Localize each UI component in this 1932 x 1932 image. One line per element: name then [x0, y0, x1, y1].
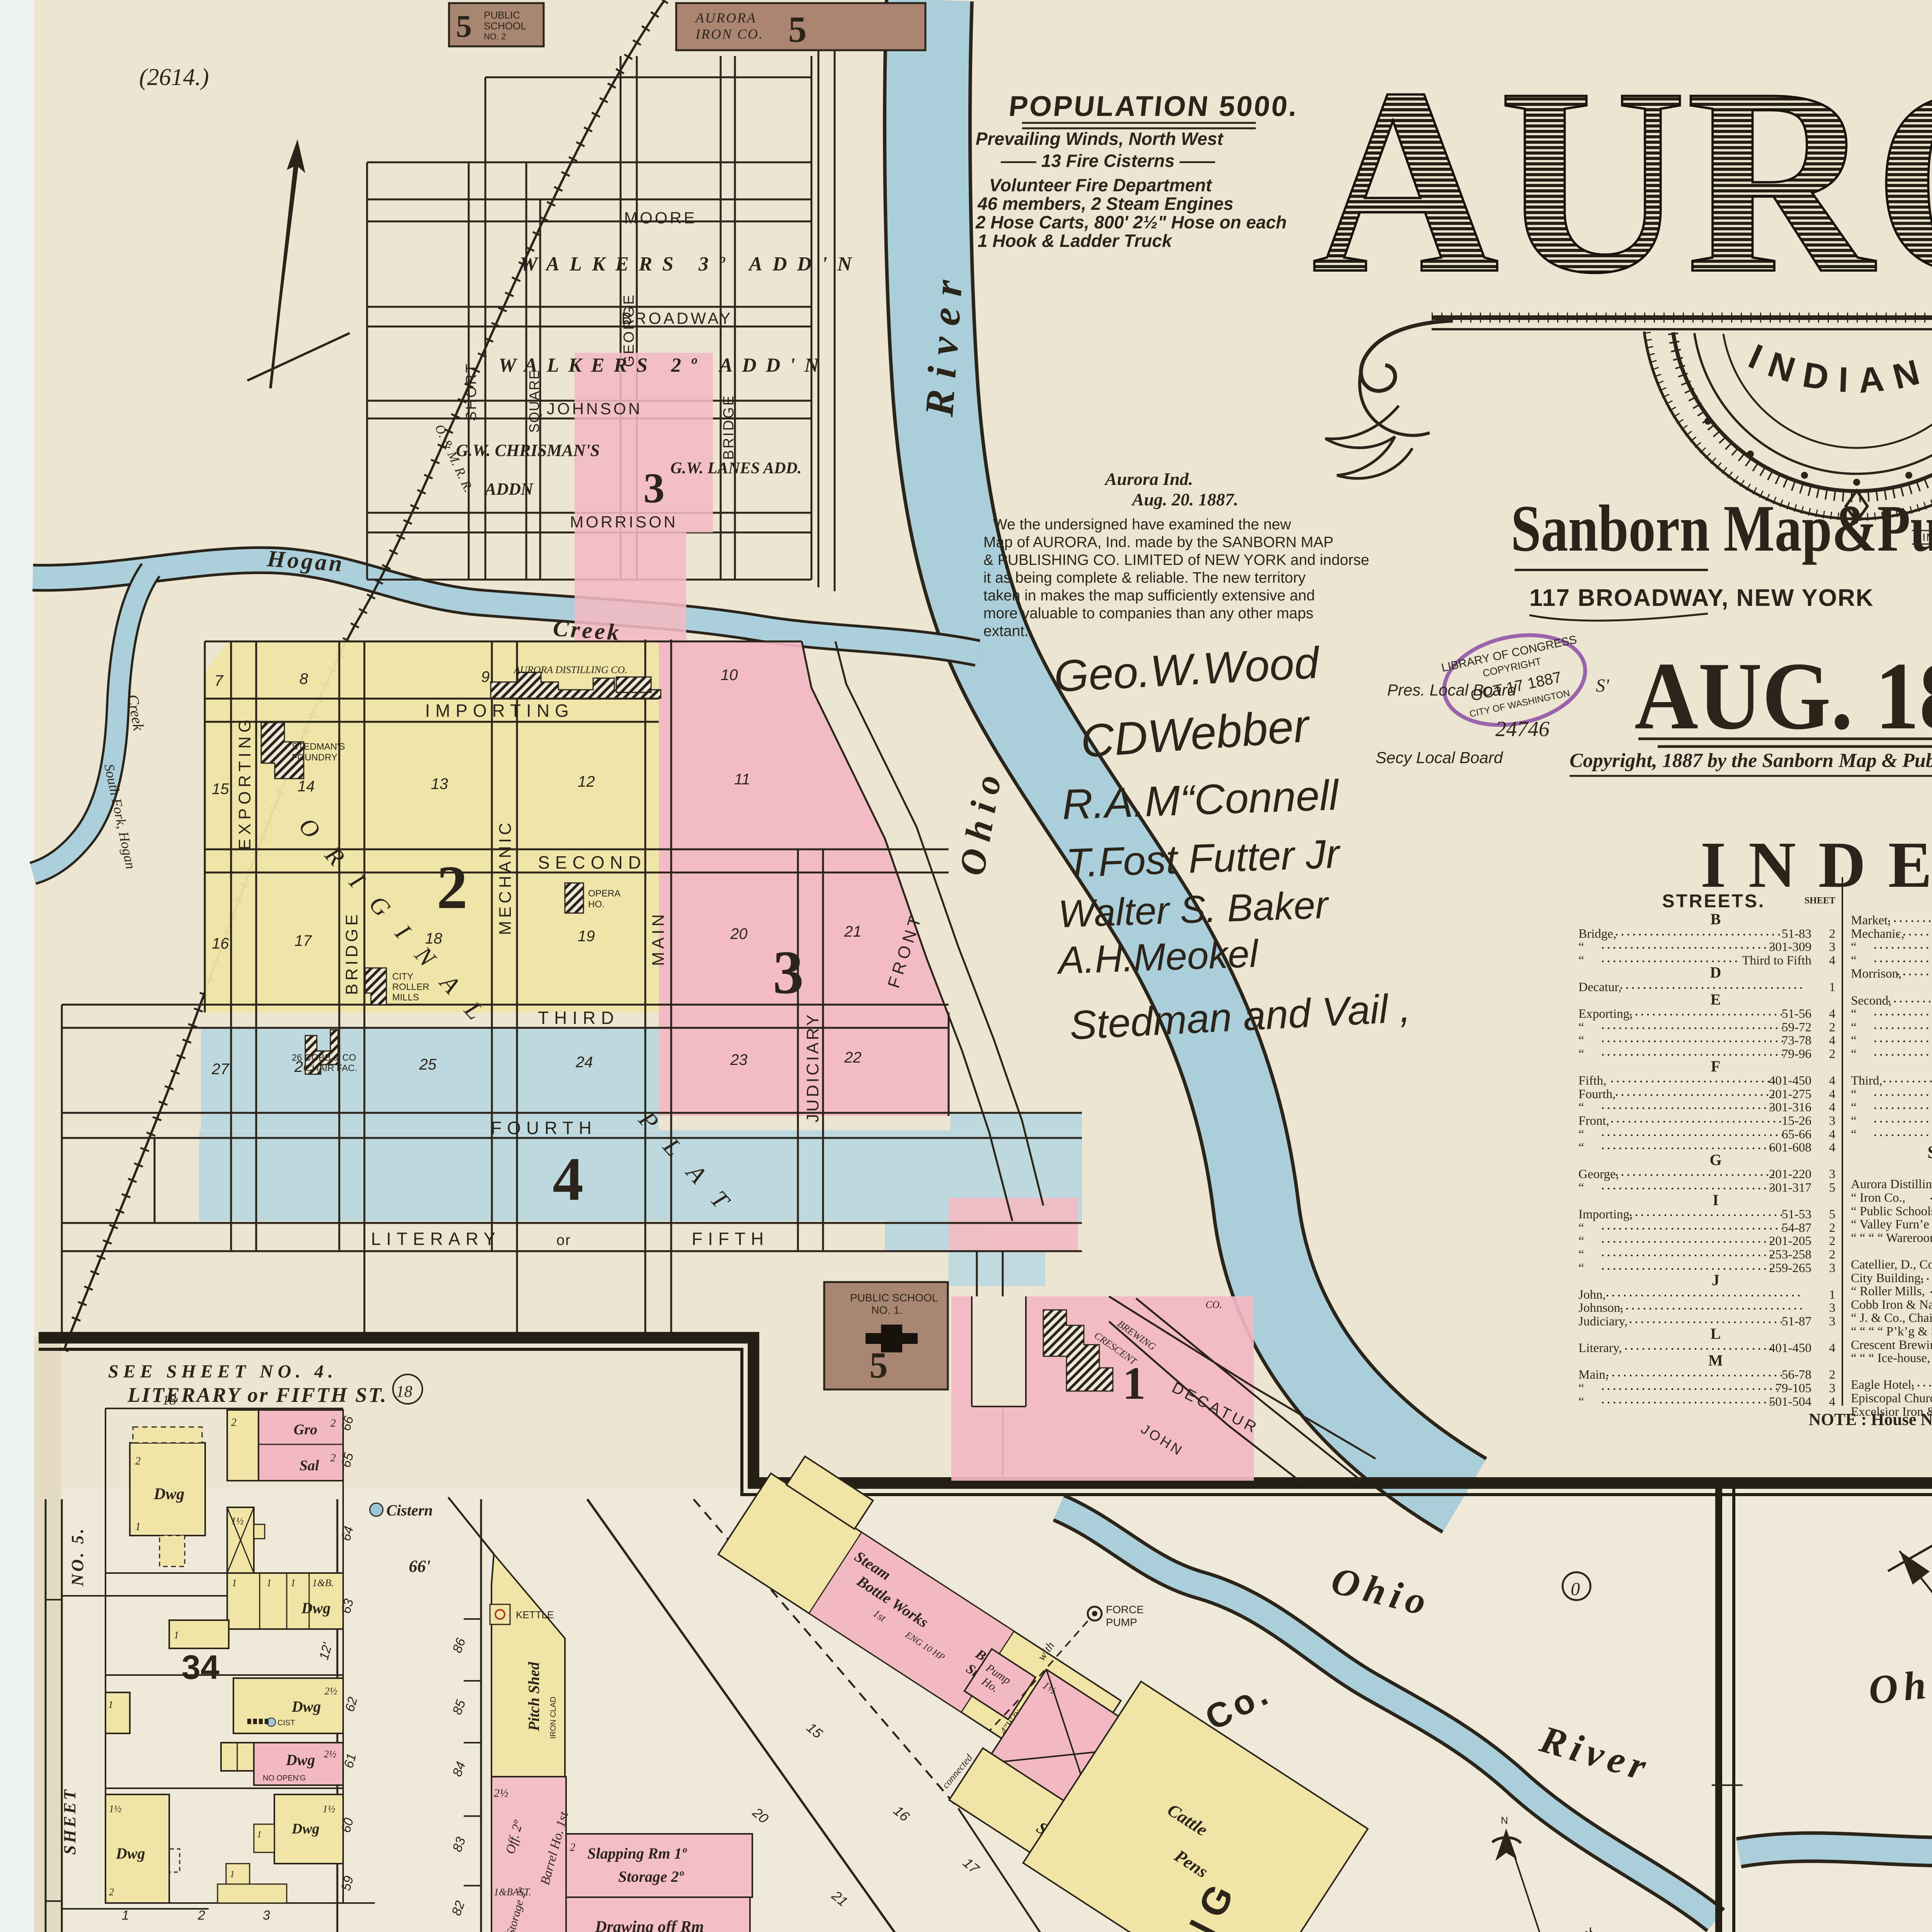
svg-text:73-78: 73-78	[1782, 1034, 1811, 1048]
svg-text:Cistern: Cistern	[386, 1502, 433, 1519]
svg-text:2: 2	[1829, 1047, 1836, 1061]
svg-text:Catellier, D., Co.’s Shoe Manu: Catellier, D., Co.’s Shoe Manufactury,	[1851, 1258, 1932, 1272]
svg-text:ADDN: ADDN	[484, 480, 534, 498]
svg-text:501-504: 501-504	[1769, 1395, 1811, 1409]
svg-text:T.Fost Futter Jr: T.Fost Futter Jr	[1065, 831, 1342, 886]
svg-text:Cobb Iron & Nail Co.,: Cobb Iron & Nail Co.,	[1851, 1298, 1932, 1312]
svg-text:B: B	[1711, 910, 1721, 928]
svg-text:21: 21	[844, 923, 862, 940]
svg-text:MECHANIC: MECHANIC	[496, 820, 515, 935]
svg-text:CITY: CITY	[392, 971, 413, 982]
svg-text:“: “	[1578, 1395, 1584, 1409]
svg-text:A.H.Meokel: A.H.Meokel	[1056, 932, 1260, 982]
svg-text:18: 18	[425, 930, 442, 947]
svg-text:2: 2	[1829, 1248, 1836, 1262]
svg-text:26 COBB & CO: 26 COBB & CO	[292, 1053, 356, 1063]
svg-text:SCHOOL: SCHOOL	[484, 20, 526, 32]
svg-text:PUMP: PUMP	[1106, 1616, 1137, 1628]
svg-text:“: “	[1578, 1100, 1584, 1114]
svg-text:66': 66'	[409, 1557, 430, 1576]
svg-text:16: 16	[212, 935, 229, 952]
svg-text:Dwg: Dwg	[153, 1485, 184, 1503]
svg-text:1: 1	[1122, 1357, 1146, 1409]
svg-text:“ “ “ “ Warerooms,: “ “ “ “ Warerooms,	[1851, 1231, 1932, 1245]
svg-text:79-105: 79-105	[1776, 1381, 1812, 1395]
svg-text:10: 10	[721, 667, 738, 684]
svg-text:“: “	[1578, 1181, 1584, 1195]
svg-text:259-265: 259-265	[1769, 1261, 1811, 1275]
svg-text:1: 1	[267, 1577, 272, 1588]
svg-text:“: “	[1578, 1234, 1584, 1248]
svg-text:AURORA: AURORA	[695, 10, 757, 26]
svg-text:19: 19	[578, 928, 595, 945]
svg-text:2: 2	[437, 853, 468, 922]
svg-text:2: 2	[570, 1842, 575, 1854]
svg-text:18: 18	[162, 1392, 176, 1408]
svg-text:3: 3	[263, 1908, 270, 1923]
svg-text:4: 4	[1829, 954, 1836, 968]
svg-text:“: “	[1851, 954, 1857, 968]
svg-text:13: 13	[431, 776, 448, 793]
svg-text:“ Valley Furn’e Co.,: “ Valley Furn’e Co.,	[1851, 1218, 1932, 1231]
svg-text:Exporting,: Exporting,	[1578, 1007, 1633, 1021]
svg-text:Judiciary,: Judiciary,	[1578, 1315, 1628, 1328]
svg-text:1½: 1½	[323, 1803, 335, 1815]
svg-text:CHAIR FAC.: CHAIR FAC.	[305, 1063, 357, 1073]
svg-text:G.W. CHRISMAN'S: G.W. CHRISMAN'S	[456, 441, 600, 460]
svg-text:Third to Fifth: Third to Fifth	[1742, 954, 1811, 968]
svg-text:25: 25	[419, 1056, 437, 1073]
svg-text:SECOND: SECOND	[538, 852, 646, 872]
svg-text:Gro: Gro	[294, 1422, 317, 1438]
svg-text:Crescent Brewing Co.,: Crescent Brewing Co.,	[1851, 1338, 1932, 1352]
svg-text:FORCE: FORCE	[1106, 1604, 1144, 1616]
svg-text:Storage 2º: Storage 2º	[618, 1868, 684, 1885]
svg-text:STEDMAN'S: STEDMAN'S	[292, 742, 345, 752]
svg-text:“: “	[1851, 1114, 1857, 1128]
svg-text:Market,: Market,	[1851, 913, 1891, 927]
svg-text:FOURTH: FOURTH	[491, 1118, 597, 1138]
svg-text:BROADWAY: BROADWAY	[621, 309, 733, 327]
svg-text:F: F	[1711, 1058, 1720, 1075]
svg-text:“ Roller Mills,: “ Roller Mills,	[1851, 1284, 1925, 1298]
svg-text:2: 2	[1829, 1221, 1836, 1235]
svg-text:“: “	[1578, 940, 1584, 954]
svg-text:“: “	[1851, 1034, 1857, 1048]
svg-text:taken in makes the map suffici: taken in makes the map sufficiently exte…	[983, 587, 1315, 604]
svg-text:SEE SHEET NO. 4.: SEE SHEET NO. 4.	[108, 1361, 337, 1382]
svg-text:GEORGE: GEORGE	[621, 293, 637, 367]
svg-text:“ Iron Co.,: “ Iron Co.,	[1851, 1191, 1905, 1205]
svg-text:IRON CO.: IRON CO.	[695, 26, 764, 42]
svg-text:AUG. 1887: AUG. 1887	[1634, 643, 1932, 750]
svg-text:2: 2	[330, 1452, 336, 1464]
svg-text:WALKERS 2º ADD'N: WALKERS 2º ADD'N	[498, 354, 828, 376]
svg-text:MAIN: MAIN	[649, 911, 668, 966]
svg-text:15: 15	[212, 781, 229, 798]
svg-text:2: 2	[1829, 1368, 1836, 1382]
svg-text:4: 4	[1829, 1074, 1836, 1088]
svg-text:3: 3	[643, 464, 665, 512]
svg-text:Johnson,: Johnson,	[1578, 1301, 1623, 1315]
svg-text:INDEX.: INDEX.	[1701, 828, 1932, 901]
svg-text:54-87: 54-87	[1782, 1221, 1811, 1235]
svg-text:HO.: HO.	[588, 899, 605, 910]
svg-text:KETTLE: KETTLE	[516, 1609, 554, 1621]
svg-text:1: 1	[1829, 980, 1836, 994]
svg-text:23: 23	[730, 1051, 748, 1068]
svg-text:“: “	[1851, 940, 1857, 954]
svg-text:27: 27	[211, 1061, 230, 1078]
svg-text:STREETS.: STREETS.	[1662, 891, 1765, 912]
svg-text:“ “ “ Ice-house,: “ “ “ Ice-house,	[1851, 1351, 1930, 1365]
svg-text:301-309: 301-309	[1769, 940, 1811, 954]
svg-text:CIST: CIST	[277, 1719, 295, 1727]
svg-text:59-72: 59-72	[1782, 1020, 1811, 1034]
svg-text:5: 5	[869, 1345, 888, 1386]
svg-text:John,: John,	[1578, 1288, 1606, 1302]
svg-text:Literary,: Literary,	[1578, 1341, 1622, 1355]
svg-text:“ J. & Co., Chair Fact.,: “ J. & Co., Chair Fact.,	[1851, 1311, 1932, 1325]
svg-text:NO. 1.: NO. 1.	[871, 1304, 903, 1316]
svg-text:1 Hook & Ladder Truck: 1 Hook & Ladder Truck	[978, 231, 1173, 251]
svg-text:or: or	[556, 1232, 571, 1248]
svg-text:1: 1	[108, 1699, 113, 1710]
svg-text:2: 2	[197, 1908, 205, 1923]
svg-text:4: 4	[1829, 1034, 1836, 1048]
svg-text:51-83: 51-83	[1782, 927, 1811, 941]
svg-text:more valuable to companies tha: more valuable to companies than any othe…	[983, 605, 1313, 622]
svg-text:Episcopal Church,: Episcopal Church,	[1851, 1391, 1932, 1405]
svg-text:65-66: 65-66	[1782, 1128, 1811, 1141]
svg-text:Dwg: Dwg	[291, 1821, 320, 1837]
svg-text:“: “	[1851, 1020, 1857, 1034]
svg-text:1: 1	[135, 1521, 141, 1533]
svg-text:MILLS: MILLS	[392, 992, 419, 1003]
svg-text:JOHNSON: JOHNSON	[547, 400, 642, 418]
svg-text:NO. 5.: NO. 5.	[68, 1526, 87, 1587]
svg-text:“: “	[1851, 1100, 1857, 1114]
svg-text:Hogan: Hogan	[266, 546, 345, 577]
svg-text:Pitch Shed: Pitch Shed	[525, 1662, 543, 1731]
svg-text:JUDICIARY: JUDICIARY	[803, 1012, 822, 1122]
svg-text:Dwg: Dwg	[301, 1599, 331, 1617]
svg-text:Sal: Sal	[299, 1458, 319, 1474]
svg-text:1½: 1½	[231, 1515, 244, 1527]
svg-text:NO OPEN'G: NO OPEN'G	[263, 1774, 306, 1782]
svg-text:1: 1	[257, 1830, 262, 1840]
svg-text:1: 1	[291, 1577, 296, 1588]
svg-text:LIMITED: LIMITED	[1916, 531, 1932, 543]
svg-text:18: 18	[396, 1383, 412, 1401]
svg-text:“: “	[1578, 1141, 1584, 1155]
svg-text:4: 4	[1829, 1100, 1836, 1114]
svg-text:POPULATION 5000.: POPULATION 5000.	[1007, 90, 1300, 122]
svg-text:“: “	[1578, 954, 1584, 968]
svg-text:extant.: extant.	[983, 623, 1029, 639]
svg-text:“: “	[1851, 1007, 1857, 1021]
svg-text:Front,: Front,	[1578, 1114, 1609, 1128]
svg-text:—— 13 Fire Cisterns ——: —— 13 Fire Cisterns ——	[1000, 151, 1216, 171]
svg-text:M: M	[1708, 1352, 1723, 1369]
svg-text:Fourth,: Fourth,	[1578, 1087, 1616, 1101]
svg-text:5: 5	[1829, 1181, 1836, 1195]
svg-text:it as being complete & reliabl: it as being complete & reliable. The new…	[983, 570, 1306, 586]
svg-text:22: 22	[844, 1049, 862, 1066]
svg-text:4: 4	[1829, 1128, 1836, 1141]
svg-text:253-258: 253-258	[1769, 1248, 1811, 1262]
svg-text:1: 1	[174, 1629, 179, 1641]
svg-text:MORRISON: MORRISON	[570, 513, 678, 531]
svg-text:2: 2	[1829, 1234, 1836, 1248]
svg-text:Second,: Second,	[1851, 994, 1891, 1008]
svg-text:“: “	[1578, 1047, 1584, 1061]
svg-text:N: N	[1501, 1815, 1508, 1826]
svg-text:Drawing off Rm: Drawing off Rm	[595, 1918, 704, 1932]
svg-text:12: 12	[578, 773, 595, 790]
svg-text:1: 1	[1829, 1288, 1836, 1302]
svg-text:4: 4	[1829, 1007, 1836, 1021]
svg-text:OPERA: OPERA	[588, 888, 621, 899]
svg-text:MOORE: MOORE	[624, 209, 697, 227]
svg-text:We the undersigned have examin: We the undersigned have examined the new	[993, 516, 1291, 533]
svg-text:15-26: 15-26	[1782, 1114, 1811, 1128]
svg-text:1: 1	[230, 1869, 235, 1879]
svg-text:EXPORTING: EXPORTING	[235, 716, 254, 850]
svg-text:79-96: 79-96	[1782, 1047, 1811, 1061]
svg-text:14: 14	[298, 778, 315, 795]
svg-text:Secy Local Board: Secy Local Board	[1376, 748, 1503, 767]
svg-text:3: 3	[773, 938, 804, 1007]
svg-text:G.W. LANES ADD.: G.W. LANES ADD.	[670, 459, 802, 477]
svg-text:Fifth,: Fifth,	[1578, 1074, 1606, 1088]
svg-text:Dwg: Dwg	[291, 1698, 321, 1715]
svg-text:BRIDGE: BRIDGE	[721, 394, 737, 460]
svg-text:17: 17	[294, 932, 312, 949]
svg-text:Aurora Distilling Co.,: Aurora Distilling Co.,	[1851, 1177, 1932, 1191]
svg-text:“: “	[1578, 1381, 1584, 1395]
svg-text:Prevailing Winds, North West: Prevailing Winds, North West	[976, 129, 1224, 149]
svg-text:“ Public Schools,: “ Public Schools,	[1851, 1204, 1932, 1218]
svg-text:Third,: Third,	[1851, 1074, 1883, 1088]
svg-text:“: “	[1578, 1128, 1584, 1141]
svg-text:4: 4	[1829, 1141, 1836, 1155]
svg-text:601-608: 601-608	[1769, 1141, 1811, 1155]
svg-text:S': S'	[1596, 675, 1609, 696]
svg-text:SPECIALS.: SPECIALS.	[1927, 1142, 1932, 1162]
svg-text:0: 0	[1571, 1579, 1580, 1599]
svg-text:2½: 2½	[494, 1787, 509, 1799]
svg-text:Volunteer Fire Department: Volunteer Fire Department	[989, 175, 1213, 195]
svg-text:SQUARE: SQUARE	[526, 369, 542, 433]
svg-text:2: 2	[1829, 927, 1836, 941]
svg-text:2½: 2½	[325, 1685, 337, 1697]
svg-text:& PUBLISHING CO. LIMITED of NE: & PUBLISHING CO. LIMITED of NEW YORK and…	[983, 552, 1369, 568]
svg-text:SHORT: SHORT	[463, 362, 480, 421]
svg-text:SHEET: SHEET	[1804, 896, 1835, 906]
svg-text:Aurora Ind.: Aurora Ind.	[1104, 469, 1193, 489]
svg-text:Dwg: Dwg	[286, 1751, 315, 1769]
svg-text:3: 3	[1829, 1261, 1836, 1275]
svg-text:L: L	[1711, 1325, 1721, 1342]
svg-text:2: 2	[109, 1886, 114, 1898]
svg-text:LITERARY: LITERARY	[371, 1229, 501, 1249]
svg-text:201-205: 201-205	[1769, 1234, 1811, 1248]
svg-text:CO.: CO.	[1206, 1299, 1222, 1310]
svg-text:N: N	[1585, 1929, 1593, 1932]
svg-text:NOTE : House Numbers given ar: NOTE : House Numbers given are Arbitrary…	[1809, 1410, 1932, 1429]
svg-text:2: 2	[1829, 1020, 1836, 1034]
svg-text:Main,: Main,	[1578, 1368, 1609, 1382]
svg-text:1: 1	[122, 1908, 129, 1923]
svg-text:4: 4	[553, 1145, 583, 1213]
svg-text:FOUNDRY: FOUNDRY	[292, 752, 337, 763]
svg-text:24746: 24746	[1495, 717, 1549, 741]
svg-text:J: J	[1712, 1271, 1719, 1289]
svg-text:Map of AURORA, Ind. made by th: Map of AURORA, Ind. made by the SANBORN …	[983, 534, 1333, 551]
svg-text:D: D	[1710, 964, 1721, 981]
svg-text:AURORA DISTILLING CO.: AURORA DISTILLING CO.	[513, 664, 627, 675]
svg-text:ROLLER: ROLLER	[392, 982, 429, 992]
svg-text:9: 9	[481, 668, 490, 685]
svg-text:1: 1	[232, 1577, 237, 1588]
svg-text:E: E	[1711, 991, 1721, 1008]
svg-text:Copyright, 1887 by the Sanborn: Copyright, 1887 by the Sanborn Map & Pub…	[1570, 750, 1932, 772]
svg-text:5: 5	[1829, 1207, 1836, 1221]
svg-text:Sanborn Map&Publishing Co.: Sanborn Map&Publishing Co.	[1511, 492, 1932, 565]
svg-text:AURORA: AURORA	[1312, 33, 1932, 328]
svg-text:1½: 1½	[109, 1803, 122, 1815]
svg-text:3: 3	[1829, 1167, 1836, 1181]
svg-text:8: 8	[299, 670, 308, 687]
svg-text:20: 20	[730, 925, 748, 942]
svg-text:“: “	[1851, 1047, 1857, 1061]
svg-text:2: 2	[231, 1417, 236, 1429]
svg-text:2½: 2½	[324, 1748, 337, 1760]
svg-text:Decatur,: Decatur,	[1578, 980, 1621, 994]
svg-text:Slapping Rm 1º: Slapping Rm 1º	[587, 1845, 687, 1862]
svg-text:7: 7	[214, 672, 224, 689]
svg-text:3: 3	[1829, 1381, 1836, 1395]
svg-text:R.A.M“Connell: R.A.M“Connell	[1061, 771, 1340, 828]
svg-text:117 BROADWAY, NEW YORK: 117 BROADWAY, NEW YORK	[1529, 585, 1874, 611]
svg-text:4: 4	[1829, 1087, 1836, 1101]
svg-text:SHEET: SHEET	[60, 1787, 79, 1855]
svg-text:201-275: 201-275	[1769, 1087, 1811, 1101]
svg-text:PUBLIC: PUBLIC	[484, 9, 520, 21]
svg-text:3: 3	[1829, 940, 1836, 954]
svg-text:Bridge,: Bridge,	[1578, 927, 1616, 941]
svg-text:“: “	[1578, 1034, 1584, 1048]
svg-text:Importing,: Importing,	[1578, 1207, 1633, 1221]
svg-text:4: 4	[1829, 1395, 1836, 1409]
svg-text:Eagle Hotel,: Eagle Hotel,	[1851, 1378, 1915, 1392]
svg-text:56-78: 56-78	[1782, 1368, 1811, 1382]
svg-text:“: “	[1578, 1261, 1584, 1275]
svg-text:51-87: 51-87	[1782, 1315, 1811, 1328]
svg-text:I: I	[1713, 1191, 1719, 1209]
svg-text:2: 2	[135, 1455, 141, 1467]
svg-text:Dwg: Dwg	[116, 1845, 145, 1862]
svg-text:2: 2	[330, 1417, 336, 1429]
svg-text:46 members, 2 Steam Engines: 46 members, 2 Steam Engines	[977, 194, 1233, 214]
svg-text:IRON CLAD: IRON CLAD	[549, 1697, 558, 1739]
svg-text:“: “	[1578, 1020, 1584, 1034]
svg-text:(2614.): (2614.)	[139, 64, 209, 90]
svg-text:401-450: 401-450	[1769, 1341, 1811, 1355]
svg-text:5: 5	[788, 9, 807, 50]
svg-text:George,: George,	[1578, 1167, 1619, 1181]
svg-text:301-317: 301-317	[1769, 1181, 1811, 1195]
svg-text:“: “	[1851, 1087, 1857, 1101]
svg-text:51-53: 51-53	[1782, 1207, 1811, 1221]
svg-text:NO. 2: NO. 2	[484, 32, 506, 41]
svg-text:WALKERS 3º ADD'N: WALKERS 3º ADD'N	[520, 253, 862, 275]
svg-text:2 Hose Carts, 800' 2½" Hose o: 2 Hose Carts, 800' 2½" Hose on each	[975, 212, 1287, 232]
svg-text:BRIDGE: BRIDGE	[342, 911, 361, 995]
svg-text:G: G	[1709, 1151, 1721, 1168]
svg-text:11: 11	[734, 771, 750, 788]
svg-text:“: “	[1578, 1221, 1584, 1235]
svg-text:“: “	[1851, 1128, 1857, 1141]
svg-text:4: 4	[1829, 1341, 1836, 1355]
svg-text:PUBLIC SCHOOL: PUBLIC SCHOOL	[850, 1292, 938, 1304]
svg-text:34: 34	[182, 1648, 219, 1686]
svg-text:301-316: 301-316	[1769, 1100, 1811, 1114]
svg-text:3: 3	[1829, 1114, 1836, 1128]
svg-text:24: 24	[575, 1054, 593, 1071]
svg-text:Aug. 20. 1887.: Aug. 20. 1887.	[1131, 490, 1238, 509]
svg-text:1&B.: 1&B.	[312, 1577, 334, 1588]
svg-text:201-220: 201-220	[1769, 1167, 1811, 1181]
svg-text:51-56: 51-56	[1782, 1007, 1811, 1021]
svg-text:THIRD: THIRD	[538, 1008, 619, 1028]
svg-text:IMPORTING: IMPORTING	[425, 701, 574, 721]
svg-text:“: “	[1578, 1248, 1584, 1262]
svg-text:FIFTH: FIFTH	[692, 1229, 769, 1249]
svg-text:3: 3	[1829, 1315, 1836, 1328]
svg-text:Morrison,: Morrison,	[1851, 967, 1901, 981]
svg-text:Mechanic,: Mechanic,	[1851, 927, 1904, 941]
svg-text:401-450: 401-450	[1769, 1074, 1811, 1088]
svg-text:Pres. Local Board: Pres. Local Board	[1387, 681, 1517, 699]
svg-text:5: 5	[456, 9, 472, 44]
svg-text:City Building,: City Building,	[1851, 1271, 1924, 1285]
svg-text:“ “ “ “ P’k’g & Ship’g: “ “ “ “ P’k’g & Ship’g	[1851, 1325, 1932, 1338]
svg-text:3: 3	[1829, 1301, 1836, 1315]
